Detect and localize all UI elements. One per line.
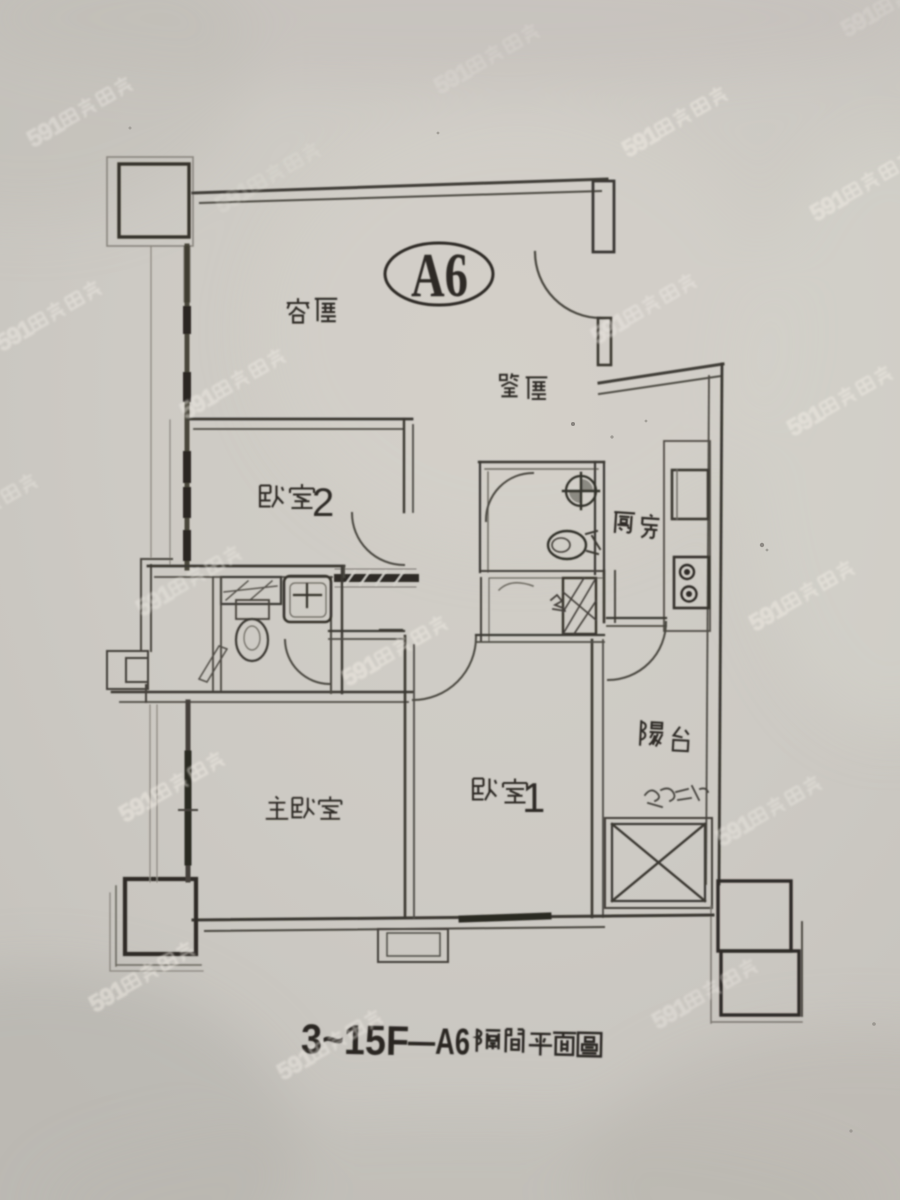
svg-text:1: 1 xyxy=(522,774,545,821)
svg-text:—A6: —A6 xyxy=(408,1020,471,1062)
svg-text:2: 2 xyxy=(312,481,334,525)
svg-text:A6: A6 xyxy=(411,242,468,310)
